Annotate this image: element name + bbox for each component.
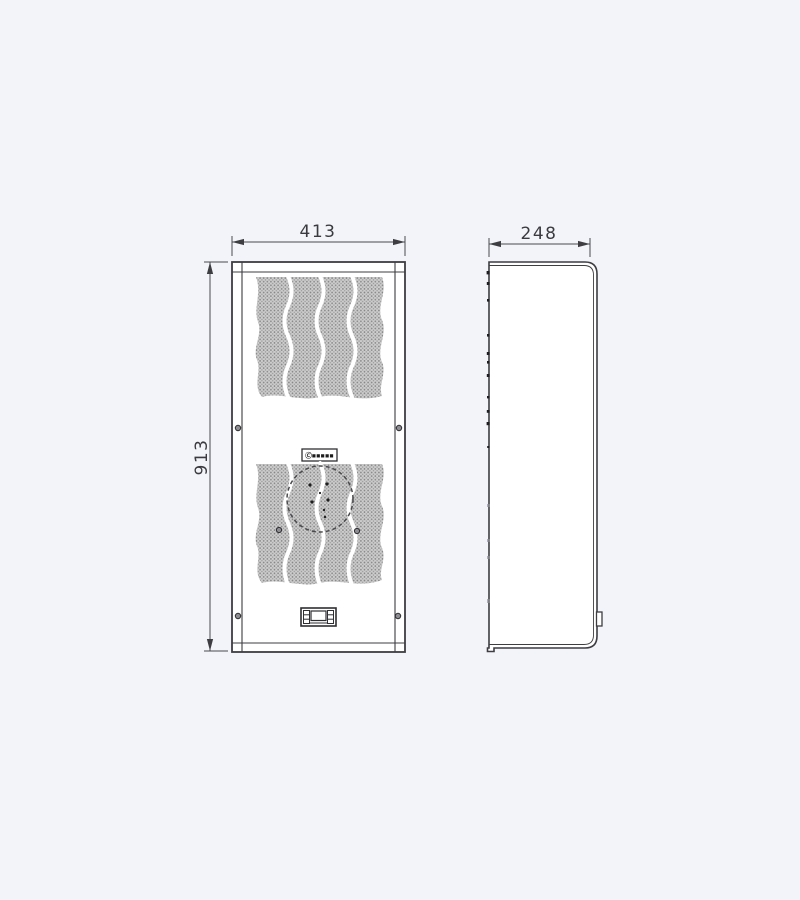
slot-tick bbox=[487, 396, 490, 398]
brand-logo-plate: Ⓒ▪▪▪▪▪ bbox=[302, 449, 337, 461]
cable-entry-right-segments bbox=[328, 611, 334, 624]
dim-label-side-depth: 248 bbox=[521, 224, 558, 244]
dim-label-front-width: 413 bbox=[300, 222, 337, 242]
mount-hole bbox=[323, 509, 325, 511]
slot-tick bbox=[487, 282, 490, 285]
slot-tick bbox=[487, 271, 490, 274]
side-view: 248 bbox=[487, 224, 602, 652]
upper-air-grille bbox=[256, 276, 384, 398]
screw bbox=[354, 528, 359, 533]
mount-hole bbox=[325, 482, 328, 485]
brand-logo-icon: Ⓒ▪▪▪▪▪ bbox=[305, 451, 334, 460]
slot-tick bbox=[487, 334, 490, 337]
mount-hole bbox=[308, 483, 311, 486]
screw bbox=[396, 425, 401, 430]
mount-hole bbox=[326, 498, 329, 501]
screw bbox=[235, 425, 240, 430]
mount-hole bbox=[324, 516, 326, 518]
slot-tick bbox=[487, 374, 490, 377]
rear-latch-tab bbox=[597, 612, 603, 626]
screw bbox=[235, 613, 240, 618]
slot-tick bbox=[487, 352, 490, 355]
technical-drawing: 413 913 bbox=[0, 0, 800, 900]
hinge-mark bbox=[487, 504, 489, 507]
hinge-mark bbox=[487, 599, 489, 603]
hinge-mark bbox=[487, 556, 489, 559]
screw bbox=[276, 527, 281, 532]
hinge-mark bbox=[487, 539, 489, 542]
cable-entry-window bbox=[311, 611, 326, 621]
screw bbox=[395, 613, 400, 618]
slot-tick bbox=[487, 446, 489, 448]
mount-hole bbox=[310, 500, 313, 503]
slot-tick bbox=[487, 299, 490, 302]
lower-air-grille bbox=[256, 463, 384, 585]
side-body-outline bbox=[488, 262, 598, 652]
slot-tick bbox=[487, 410, 490, 413]
drawing-sheet: 413 913 bbox=[0, 0, 800, 900]
slot-tick bbox=[487, 422, 490, 425]
cable-entry-left-segments bbox=[304, 611, 310, 624]
cable-entry-block bbox=[301, 608, 336, 626]
slot-tick bbox=[487, 361, 490, 364]
center-mark bbox=[319, 492, 321, 494]
front-view: 413 913 bbox=[192, 222, 405, 652]
dim-label-front-height: 913 bbox=[192, 439, 212, 476]
